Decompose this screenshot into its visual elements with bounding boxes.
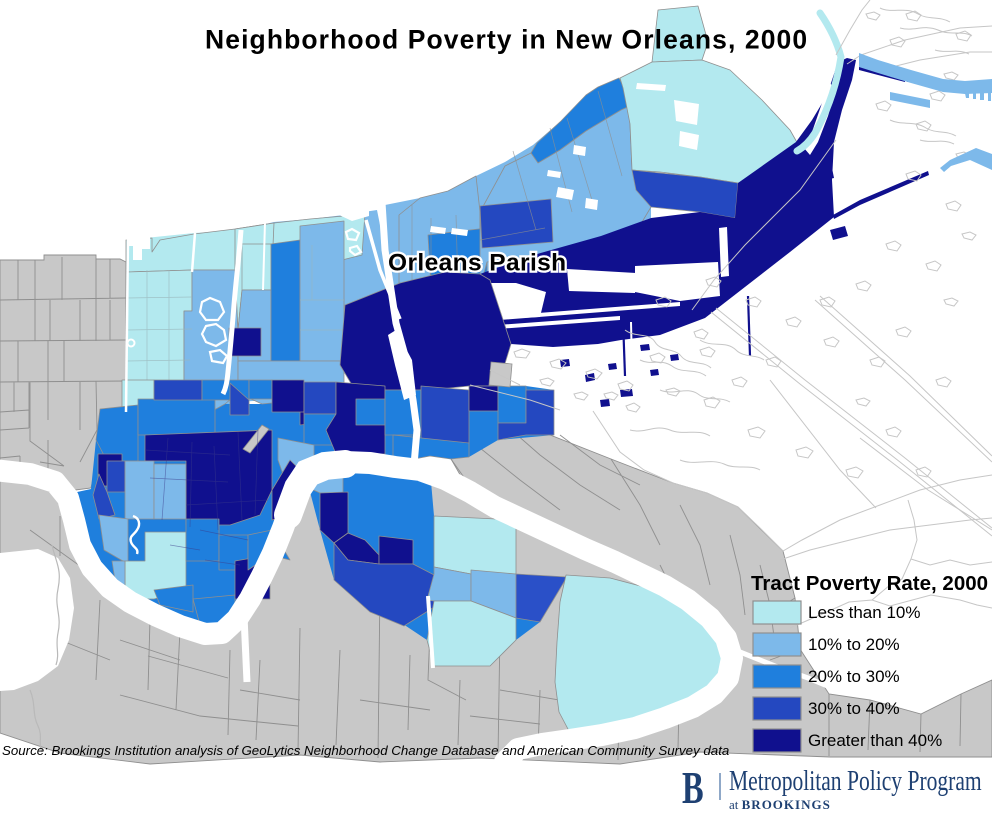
svg-text:Less than 10%: Less than 10% [808,603,920,622]
svg-text:30% to 40%: 30% to 40% [808,699,900,718]
svg-text:Orleans Parish: Orleans Parish [388,250,567,277]
svg-text:20% to 30%: 20% to 30% [808,667,900,686]
svg-text:Greater than 40%: Greater than 40% [808,731,942,750]
svg-text:Tract Poverty Rate, 2000: Tract Poverty Rate, 2000 [751,572,988,595]
svg-text:10% to 20%: 10% to 20% [808,635,900,654]
svg-text:Neighborhood Poverty in New Or: Neighborhood Poverty in New Orleans, 200… [205,25,808,55]
svg-text:Source: Brookings Institution: Source: Brookings Institution analysis o… [2,743,729,758]
